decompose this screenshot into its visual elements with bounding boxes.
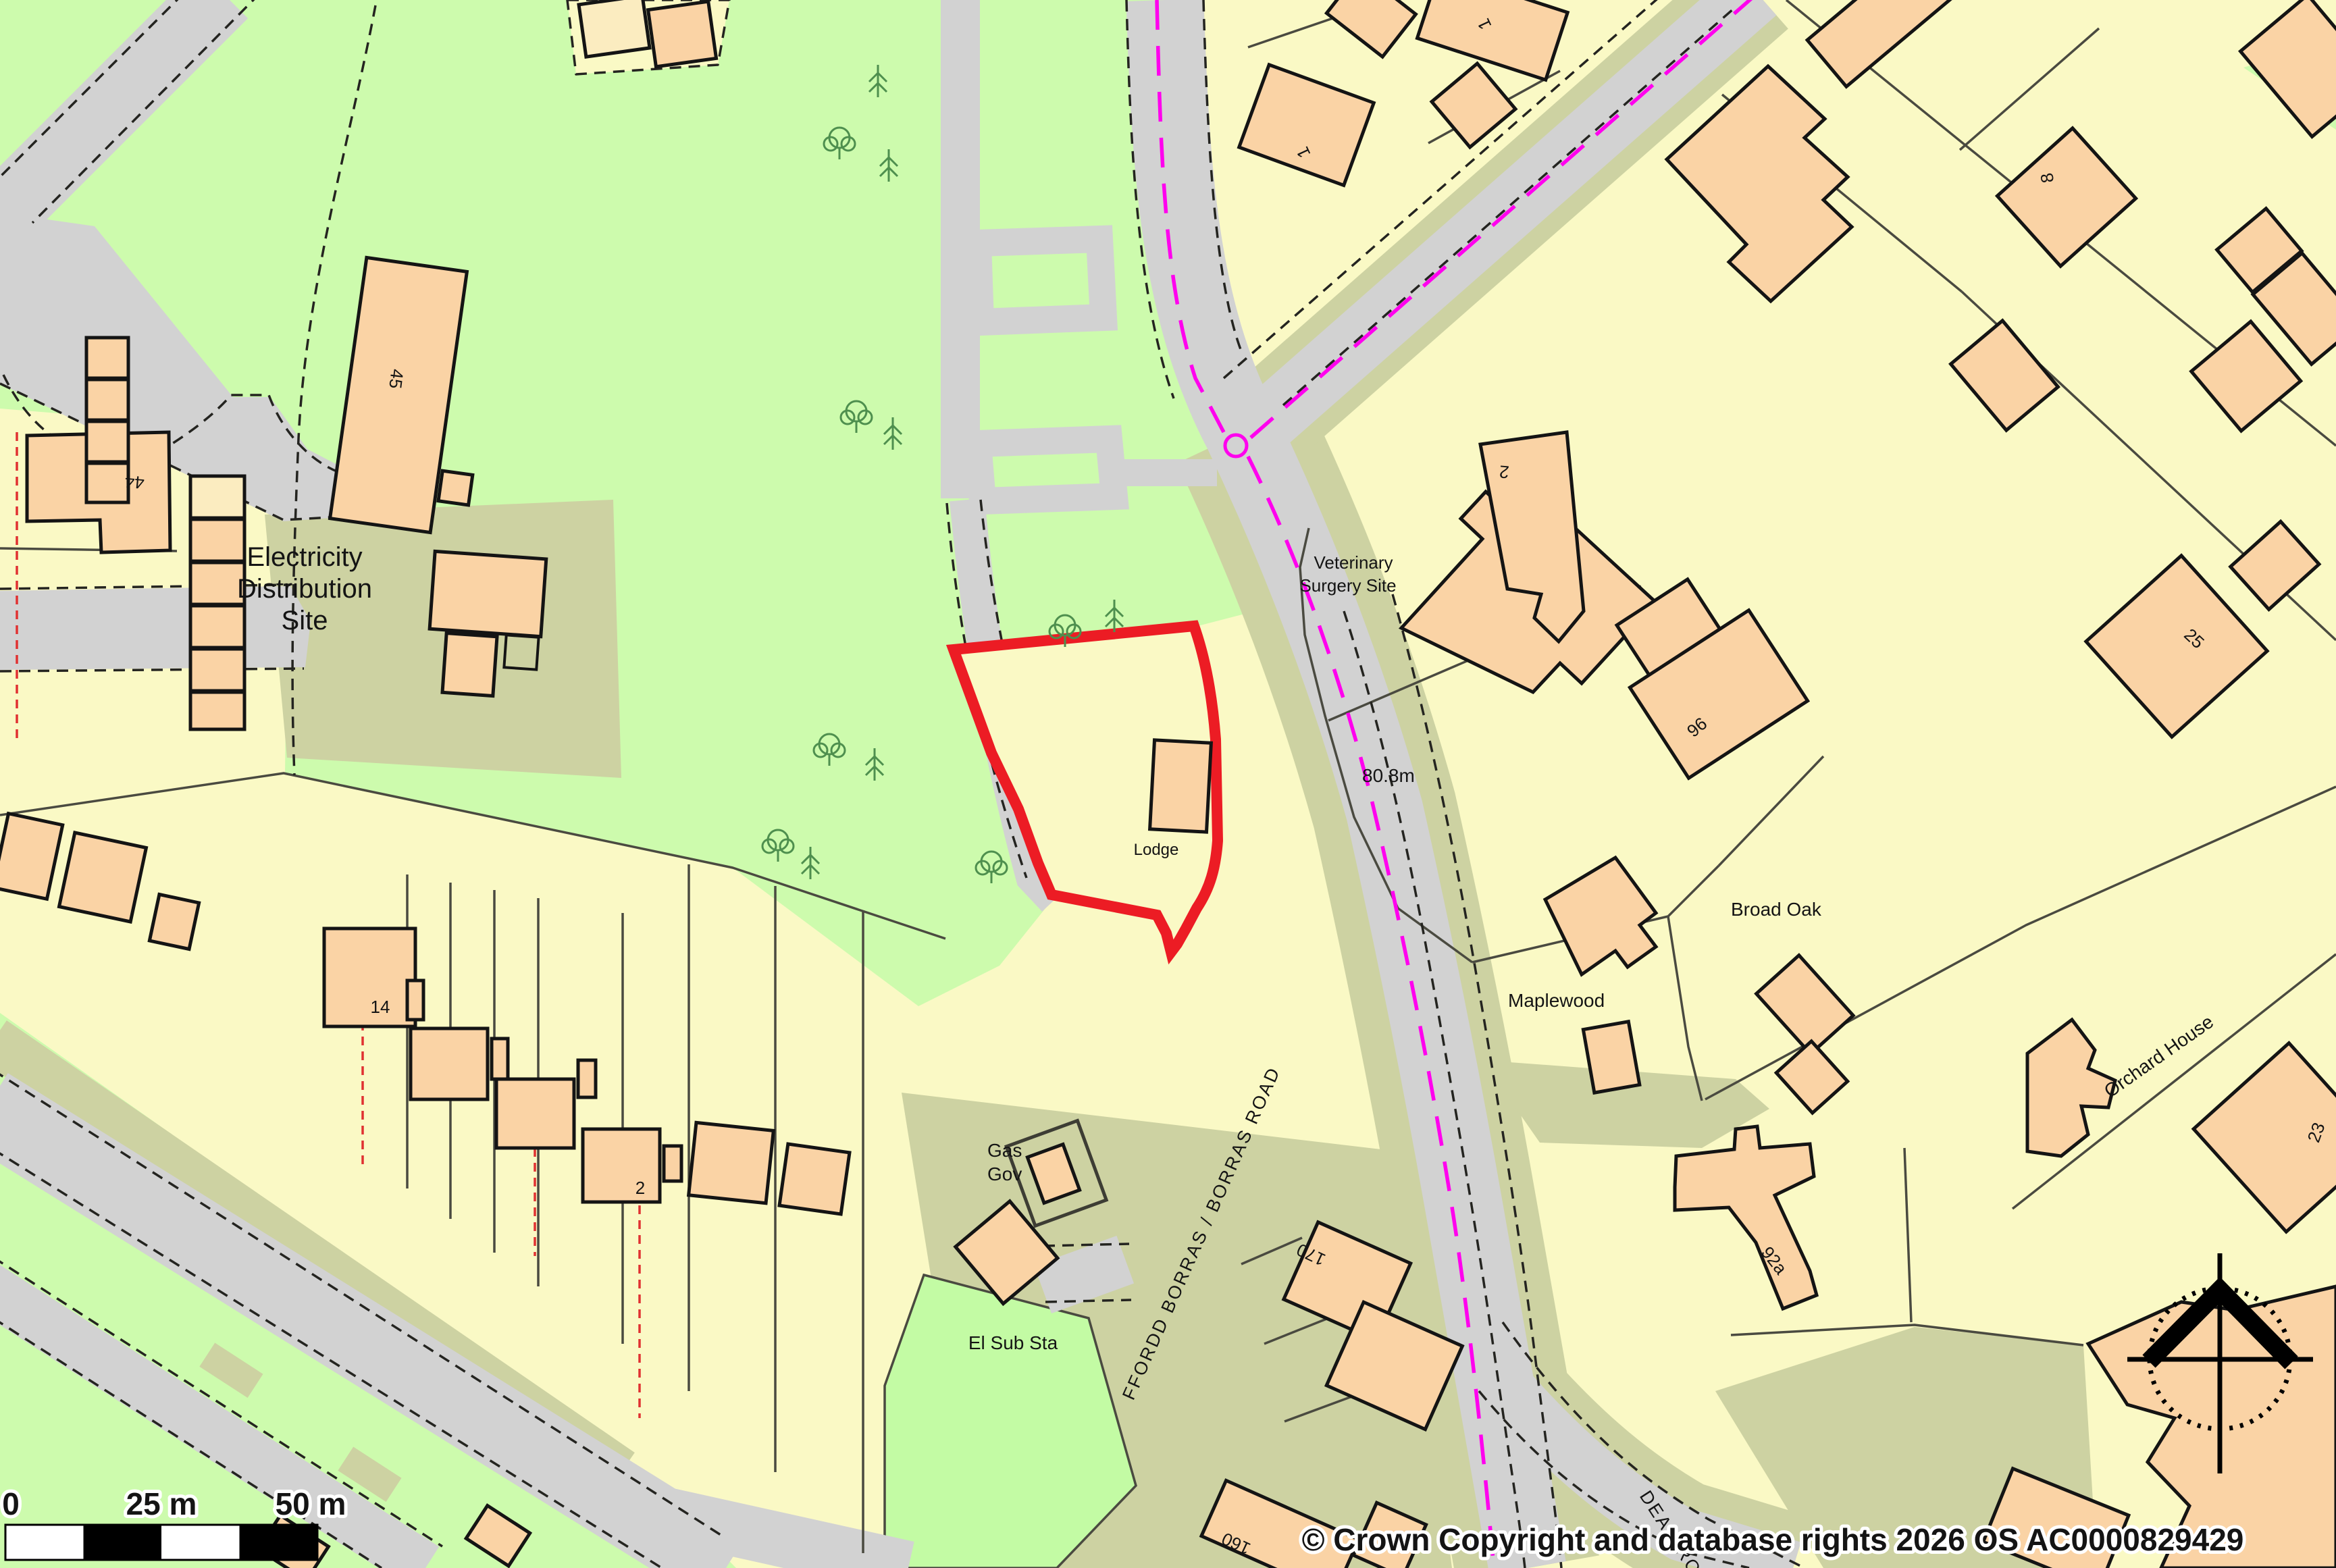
building <box>59 833 147 922</box>
scale-label-25m: 25 m <box>126 1486 197 1521</box>
label-broad-oak: Broad Oak <box>1731 899 1822 920</box>
building <box>1583 1022 1639 1093</box>
house-number-2-left: 2 <box>635 1178 645 1198</box>
lodge-building <box>1150 740 1212 832</box>
building <box>583 1129 660 1202</box>
building <box>438 471 473 505</box>
building <box>579 0 650 57</box>
building <box>664 1146 681 1181</box>
building <box>648 1 717 67</box>
label-gov: Gov <box>987 1164 1022 1184</box>
scale-bar-segment <box>240 1525 318 1560</box>
building <box>492 1039 508 1079</box>
garage-block <box>86 338 128 502</box>
scale-bar-segment <box>84 1525 162 1560</box>
map-canvas: Electricity Distribution Site Veterinary… <box>0 0 2336 1568</box>
label-electricity-1: Electricity <box>246 542 362 572</box>
house-number-44: 44 <box>124 471 145 493</box>
os-map-extract: Electricity Distribution Site Veterinary… <box>0 0 2336 1568</box>
building <box>496 1079 574 1148</box>
building <box>442 633 497 696</box>
label-maplewood: Maplewood <box>1508 990 1605 1011</box>
label-electricity-2: Distribution <box>237 574 372 604</box>
building <box>324 929 415 1026</box>
building <box>779 1144 850 1214</box>
copyright-text: © Crown Copyright and database rights 20… <box>1302 1522 2244 1557</box>
label-veterinary-2: Surgery Site <box>1299 575 1396 596</box>
label-spot-height: 80.8m <box>1362 765 1415 786</box>
label-el-sub-sta: El Sub Sta <box>968 1332 1058 1353</box>
label-veterinary-1: Veterinary <box>1314 552 1393 573</box>
building <box>689 1122 774 1203</box>
house-number-14: 14 <box>371 997 390 1017</box>
building <box>578 1060 596 1097</box>
scale-label-0: 0 <box>2 1486 20 1521</box>
label-gas: Gas <box>987 1140 1022 1161</box>
building <box>407 981 423 1020</box>
house-number-45: 45 <box>385 368 407 390</box>
building <box>430 551 546 636</box>
label-lodge: Lodge <box>1134 841 1179 859</box>
label-electricity-3: Site <box>282 606 328 635</box>
house-number-2-vet: 2 <box>1499 461 1510 482</box>
building <box>149 895 199 949</box>
scale-label-50m: 50 m <box>276 1486 346 1521</box>
building <box>411 1028 488 1099</box>
